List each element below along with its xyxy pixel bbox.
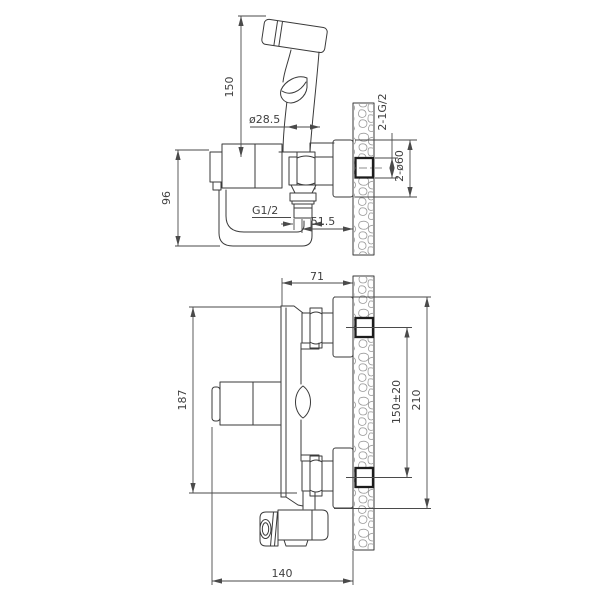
holder-tab (284, 540, 308, 546)
technical-drawing: 150 ø28.5 96 G1/2 51.5 2-1G/2 2-ø60 (0, 0, 600, 600)
dim-sprayer-height: 150 (223, 77, 236, 98)
dim-wall-thread: 2-1G/2 (376, 93, 389, 130)
dim-projection: 71 (310, 270, 324, 283)
dim-outlet-thread: G1/2 (252, 204, 278, 217)
sprayer-in-holder (260, 510, 328, 546)
upper-union-nut (301, 308, 333, 349)
dim-sprayer-diameter: ø28.5 (249, 113, 280, 126)
sprayer-trigger (281, 77, 308, 103)
lower-union-nut (301, 455, 333, 496)
dim-connection-spacing: 150±20 (390, 380, 403, 424)
wall-flange (333, 140, 353, 197)
dim-flange-diameter: 2-ø60 (393, 150, 406, 182)
upper-flange (333, 297, 353, 357)
sprayer-barrel (278, 510, 328, 540)
pipe-ornament (296, 386, 311, 418)
lever-handle-2 (212, 382, 281, 425)
installation-view: 71 187 150±20 210 140 (176, 270, 431, 585)
sprayer-neck (283, 50, 291, 82)
cartridge-cap (210, 152, 222, 182)
dim-overall-depth: 140 (272, 567, 293, 580)
side-view: 150 ø28.5 96 G1/2 51.5 2-1G/2 2-ø60 (160, 16, 417, 255)
hand-sprayer (261, 19, 328, 152)
dim-outlet-to-wall: 51.5 (311, 215, 336, 228)
sprayer-head (261, 19, 328, 53)
wall-hatch (354, 104, 373, 254)
hose-outlet (290, 185, 316, 218)
dim-flange-span: 210 (410, 390, 423, 411)
side-view-dimensions: 150 ø28.5 96 G1/2 51.5 2-1G/2 2-ø60 (160, 16, 417, 246)
dim-body-height: 96 (160, 191, 173, 205)
dim-body-length: 187 (176, 390, 189, 411)
union-nut (289, 143, 334, 189)
lower-flange (333, 448, 353, 508)
